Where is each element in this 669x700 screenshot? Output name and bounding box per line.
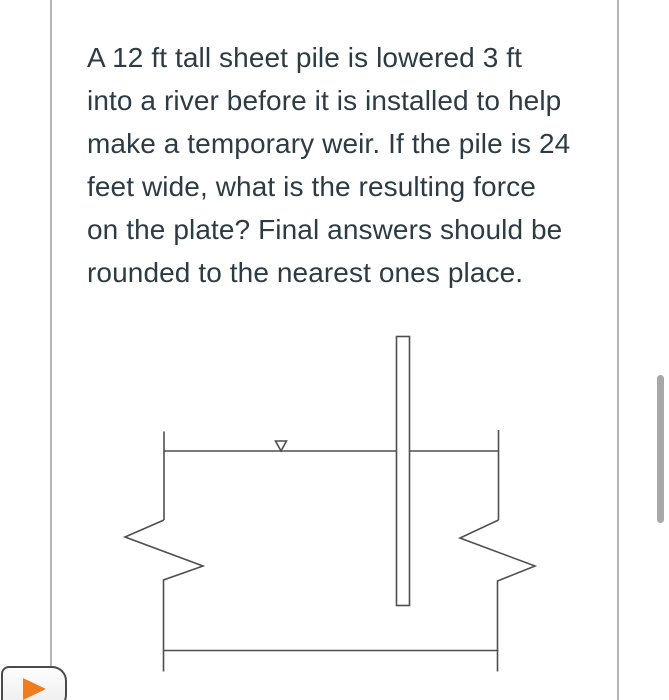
- river-sheet-pile-figure: [0, 0, 669, 700]
- vertical-scrollbar-thumb[interactable]: [657, 375, 664, 523]
- left-wall-break-zigzag: [125, 520, 203, 672]
- water-surface-marker-icon: [276, 441, 287, 451]
- right-wall-break-zigzag: [460, 520, 535, 672]
- play-button[interactable]: [1, 666, 67, 700]
- question-viewer-viewport: A 12 ft tall sheet pile is lowered 3 ft …: [0, 0, 669, 700]
- play-icon: [23, 678, 46, 700]
- sheet-pile: [397, 337, 410, 606]
